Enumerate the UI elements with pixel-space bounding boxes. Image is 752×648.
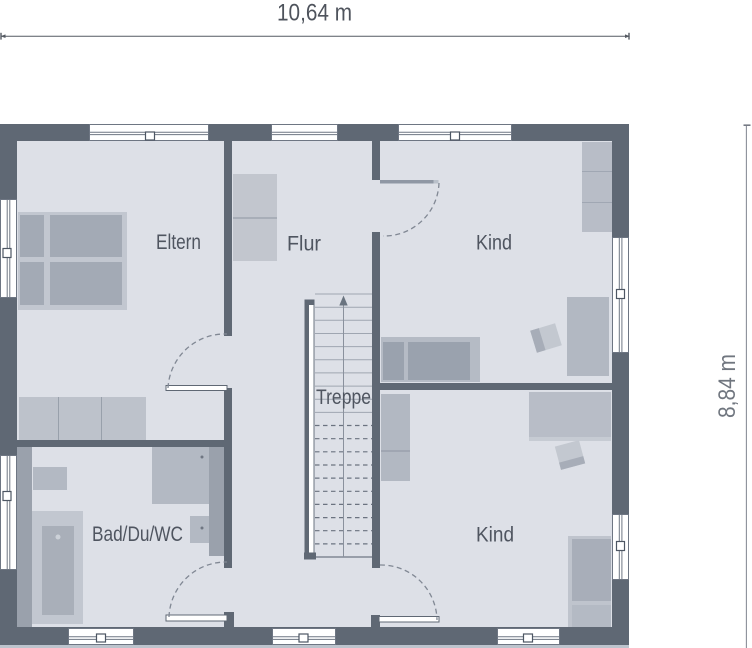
svg-text:10,64 m: 10,64 m: [277, 0, 352, 27]
svg-text:Treppe: Treppe: [316, 386, 371, 409]
svg-text:Kind: Kind: [476, 524, 514, 547]
svg-text:Eltern: Eltern: [156, 231, 201, 254]
svg-text:Bad/Du/WC: Bad/Du/WC: [92, 523, 183, 546]
svg-text:8,84 m: 8,84 m: [714, 354, 741, 418]
svg-text:Flur: Flur: [287, 233, 321, 256]
svg-text:Kind: Kind: [476, 232, 512, 255]
